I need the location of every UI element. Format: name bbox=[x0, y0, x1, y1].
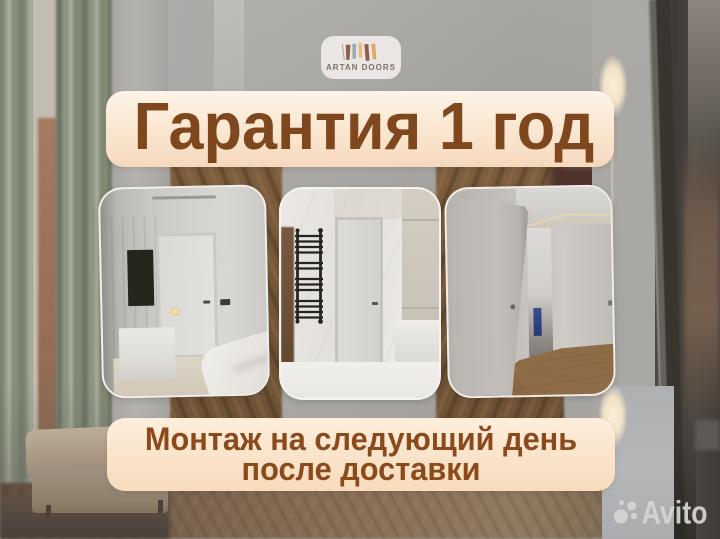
svg-text:Avito: Avito bbox=[642, 494, 708, 530]
